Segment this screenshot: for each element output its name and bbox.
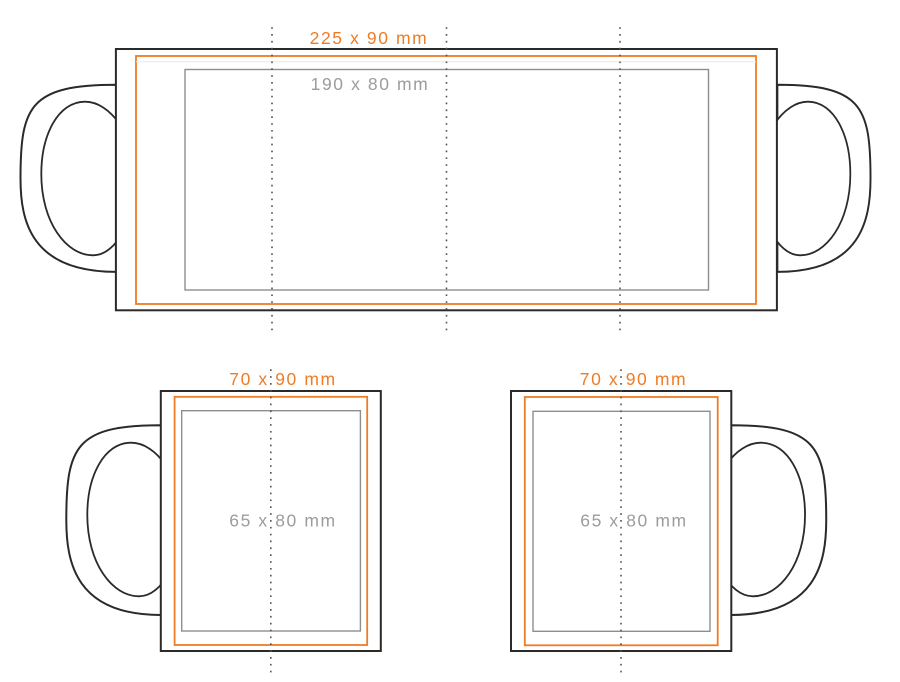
svg-text:70 x 90 mm: 70 x 90 mm <box>229 369 336 389</box>
svg-text:225 x 90 mm: 225 x 90 mm <box>310 28 429 48</box>
svg-text:65 x 80 mm: 65 x 80 mm <box>229 511 336 531</box>
svg-text:190 x 80 mm: 190 x 80 mm <box>311 74 430 94</box>
svg-text:70 x 90 mm: 70 x 90 mm <box>580 369 687 389</box>
svg-text:65 x 80 mm: 65 x 80 mm <box>580 511 687 531</box>
